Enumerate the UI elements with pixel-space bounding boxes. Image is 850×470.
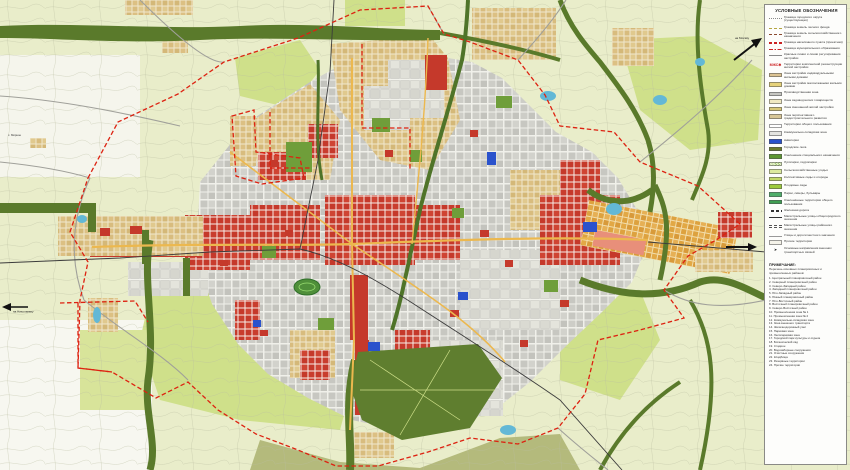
legend-label: Парки, скверы, бульвары [784,192,820,195]
direction-label-northeast: на Москву [735,36,750,40]
legend-row: Магистральные улицы районного значения [769,224,844,231]
village-label: с. Мирное [8,133,22,137]
legend-label: Железная дорога [784,209,809,212]
legend-row: Магистральные улицы общегородского значе… [769,215,844,222]
legend-row: Лугопарки, гидропарки [769,161,844,166]
legend-swatch [769,200,782,205]
legend-swatch [769,82,782,87]
legend-swatch [769,55,782,56]
legend-label: Улицы и дороги местного значения [784,234,835,237]
legend-label: Граница земель сельскохозяйственного наз… [784,32,844,39]
legend-row: Производственная зона [769,91,844,96]
legend-label: Зона смешанной жилой застройки [784,106,834,109]
legend-row: Граница городского округа (существующая) [769,16,844,23]
legend-label: Граница земель лесного фонда [784,26,830,29]
legend-label: Граница городского округа (существующая) [784,16,844,23]
legend-swatch [769,114,782,119]
legend-row: Зона застройки малоэтажными жилыми домам… [769,82,844,89]
legend-title: УСЛОВНЫЕ ОБОЗНАЧЕНИЯ [769,8,844,13]
legend-swatch [769,210,782,212]
legend-row: Железная дорога [769,209,844,212]
legend-label: Зона садоводческих товариществ [784,99,833,102]
genplan-screenshot: на Николаевку на Москву с. Мирное УСЛОВН… [0,0,850,470]
legend-row: Сельскохозяйственные угодья [769,169,844,174]
legend-label: Озеленение специального назначения [784,154,840,157]
legend-panel: УСЛОВНЫЕ ОБОЗНАЧЕНИЯ Граница городского … [764,4,847,465]
legend-swatch [769,240,782,245]
legend-row: Улицы и дороги местного значения [769,234,844,237]
notes-subtitle: Перечень основных планировочных и промыш… [769,268,844,275]
legend-swatch [769,139,782,144]
legend-swatch [769,169,782,174]
legend-swatch [769,92,782,97]
legend-label: Коллективные сады и огороды [784,176,828,179]
legend-list: Граница городского округа (существующая)… [769,16,844,254]
legend-row: Граница населённого пункта (проектная) [769,41,844,44]
legend-row: Коллективные сады и огороды [769,176,844,181]
legend-row: Зона смешанной жилой застройки [769,106,844,111]
legend-row: Граница земель лесного фонда [769,26,844,29]
legend-swatch: ➤ [769,248,782,253]
legend-swatch [769,124,782,129]
legend-swatch [769,184,782,189]
legend-label: Граница населённого пункта (проектная) [784,41,843,44]
legend-row: МЖС✱ Территории комплексной реконструкци… [769,63,844,70]
legend-row: Граница земель сельскохозяйственного наз… [769,32,844,39]
legend-row: Зона перспективного градостроительного р… [769,114,844,121]
city-masterplan-map: на Николаевку на Москву с. Мирное [0,0,850,470]
legend-notes: ПРИМЕЧАНИЕ: Перечень основных планировоч… [769,263,844,367]
notes-list: 1. Центральный планировочный район 2. Се… [769,277,844,367]
legend-swatch [769,18,782,19]
legend-label: Магистральные улицы районного значения [784,224,844,231]
legend-label: Сельскохозяйственные угодья [784,169,828,172]
note-item: 24. Прочие территории [769,364,844,368]
legend-label: Зона застройки малоэтажными жилыми домам… [784,82,844,89]
legend-row: Городские леса [769,146,844,151]
legend-row: Граница муниципального образования [769,47,844,50]
legend-swatch [769,49,782,50]
legend-swatch [769,107,782,112]
legend-swatch [769,34,782,35]
legend-label: Городские леса [784,146,806,149]
legend-swatch [769,28,782,29]
legend-label: Зона застройки индивидуальными жилыми до… [784,72,844,79]
legend-label: Плодовые сады [784,184,807,187]
legend-swatch [769,131,782,136]
legend-row: Плодовые сады [769,184,844,189]
legend-label: Производственная зона [784,91,818,94]
legend-label: Территории общего пользования [784,123,831,126]
legend-label: Зона перспективного градостроительного р… [784,114,844,121]
legend-row: Акватории [769,139,844,144]
legend-swatch [769,192,782,197]
legend-label: Красные линии и линии регулирования заст… [784,53,844,60]
legend-swatch [769,73,782,78]
legend-swatch [769,236,782,237]
direction-label-west: на Николаевку [13,310,34,314]
legend-label: Озеленённые территории общего пользовани… [784,199,844,206]
legend-row: Красные линии и линии регулирования заст… [769,53,844,60]
legend-label: Лугопарки, гидропарки [784,161,817,164]
legend-label: Коммунально-складская зона [784,131,827,134]
legend-swatch [769,147,782,152]
legend-label: Прочие территории [784,240,812,243]
legend-row: Прочие территории [769,240,844,245]
legend-label: Магистральные улицы общегородского значе… [784,215,844,222]
legend-label: Основные направления внешних транспортны… [784,247,844,254]
legend-label: Граница муниципального образования [784,47,840,50]
legend-row: Озеленение специального назначения [769,154,844,159]
legend-label: Акватории [784,139,799,142]
legend-swatch [769,162,782,167]
legend-row: Территории общего пользования [769,123,844,128]
legend-row: Парки, скверы, бульвары [769,192,844,197]
legend-swatch [769,154,782,159]
legend-swatch [769,42,782,44]
legend-row: Зона застройки индивидуальными жилыми до… [769,72,844,79]
legend-swatch [769,99,782,104]
legend-swatch [769,217,782,218]
stadium [294,279,320,295]
legend-swatch: МЖС✱ [769,63,782,68]
legend-label: Территории комплексной реконструкции жил… [784,63,844,70]
legend-row: Озеленённые территории общего пользовани… [769,199,844,206]
legend-row: Зона садоводческих товариществ [769,99,844,104]
legend-row: ➤ Основные направления внешних транспорт… [769,247,844,254]
legend-swatch [769,225,782,227]
legend-row: Коммунально-складская зона [769,131,844,136]
legend-swatch [769,177,782,182]
